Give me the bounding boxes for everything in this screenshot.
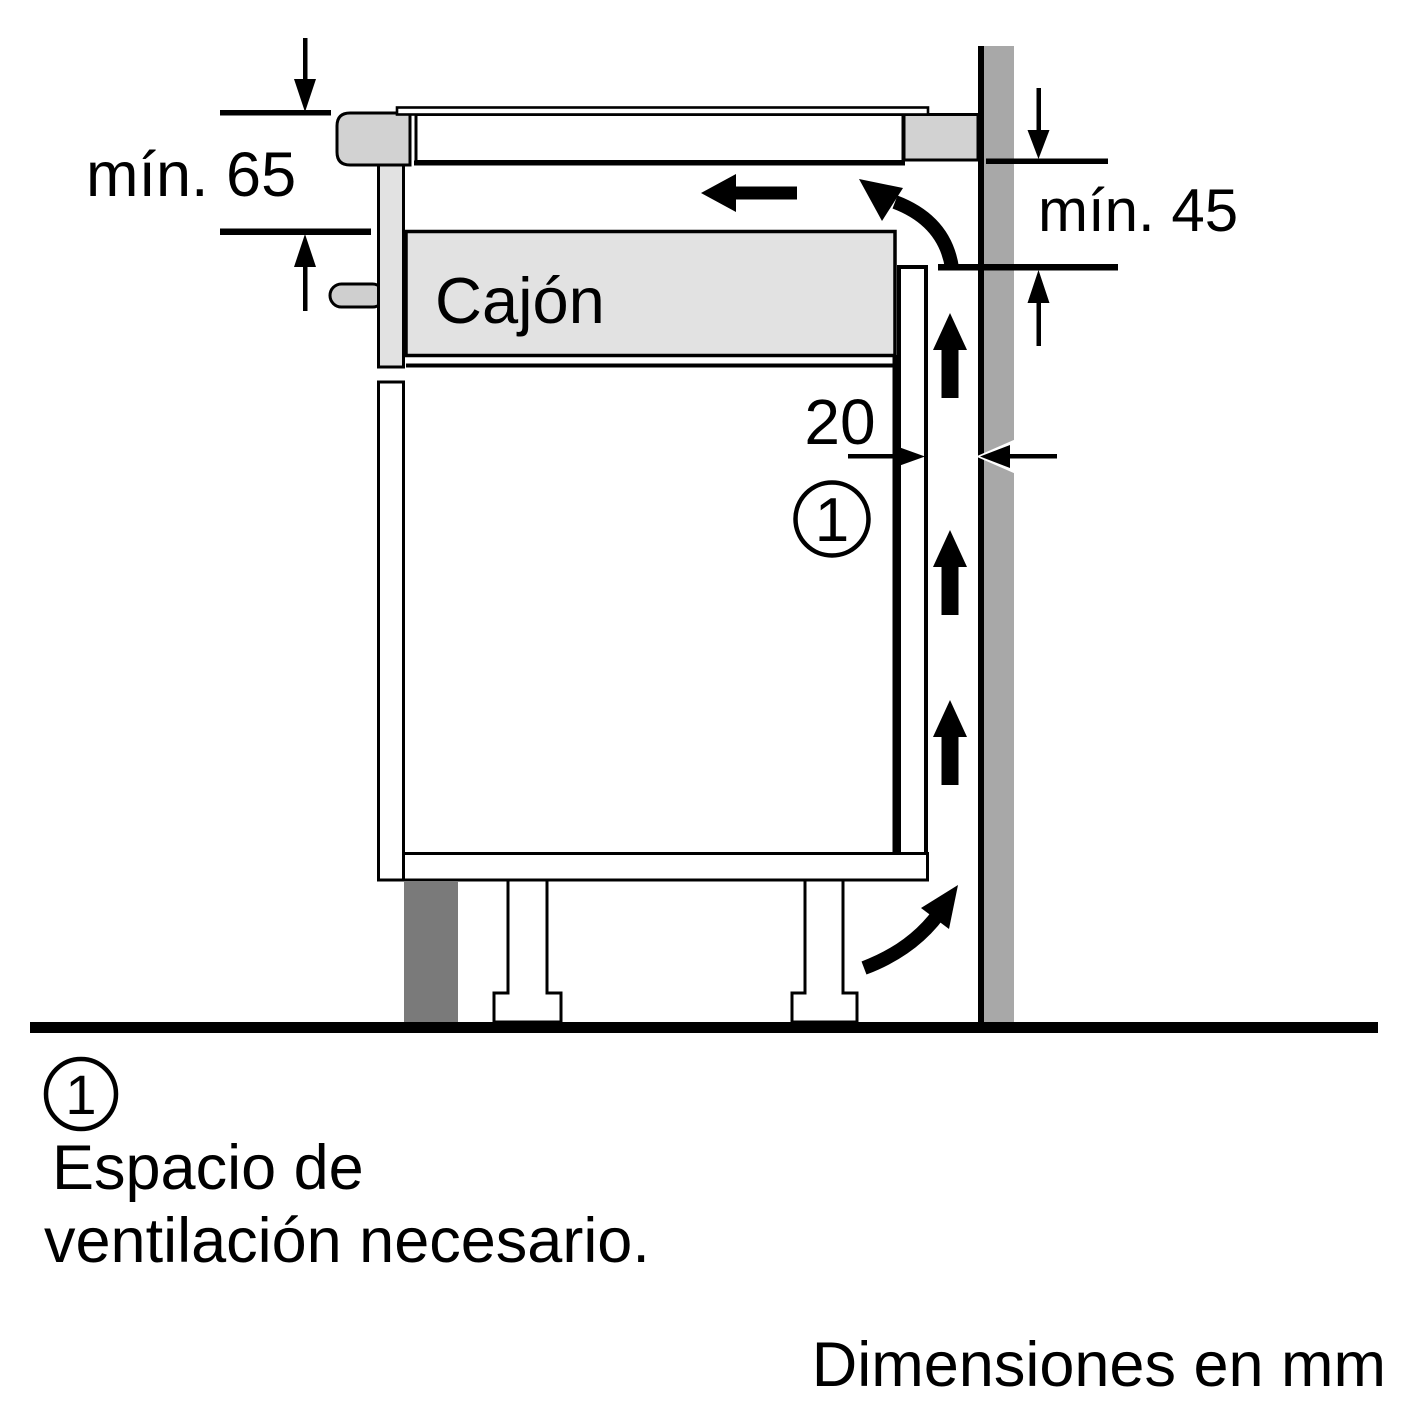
dim-label-top-clearance: mín. 65 (86, 140, 296, 210)
dim-arrow-shaft (1009, 454, 1057, 459)
airflow-up-arrow-1 (933, 313, 967, 398)
cabinet-leg-left (494, 880, 561, 1022)
dim-top-clearance: mín. 65 (86, 38, 371, 311)
cabinet-front-rail (379, 165, 404, 367)
hob-body (416, 115, 903, 162)
airflow-up-arrow-2 (933, 530, 967, 615)
dim-arrow-shaft (303, 266, 308, 311)
airflow-left-arrow-shaft (735, 187, 797, 200)
callout-1: 1 (796, 483, 869, 556)
airflow-up-arrowhead (933, 530, 967, 567)
cabinet-bottom-panel (404, 854, 928, 881)
airflow-up-arrow-shaft (942, 349, 959, 398)
dim-arrow-up-head (1028, 270, 1050, 303)
airflow-up-arrowhead (933, 700, 967, 737)
cabinet-back-panel (899, 267, 926, 854)
plinth (404, 881, 458, 1022)
dim-line-lower (938, 264, 1118, 271)
hob-frame-left (337, 113, 410, 165)
legend: 1 Espacio de ventilación necesario. (44, 1059, 650, 1276)
dim-label-side-clearance: mín. 45 (1038, 177, 1238, 244)
airflow-up-arrow-shaft (942, 566, 959, 615)
airflow-left-arrowhead (701, 174, 736, 212)
hob-installation-diagram: Cajón (0, 0, 1406, 1406)
worktop-filler (904, 115, 978, 161)
airflow-turn-arrow-curve (895, 202, 952, 268)
airflow-up-arrow-shaft (942, 736, 959, 785)
dim-arrow-down-head (294, 79, 316, 112)
dim-arrow-shaft (303, 38, 308, 82)
hob-assembly (337, 108, 978, 166)
airflow-left-arrow (701, 174, 797, 212)
dim-label-vent-gap: 20 (804, 386, 875, 458)
airflow-up-arrow-3 (933, 700, 967, 785)
wall-body (984, 46, 1014, 1022)
drawer: Cajón (406, 232, 895, 356)
drawer-label: Cajón (435, 264, 605, 337)
dim-line-upper (220, 110, 331, 116)
dim-vent-gap: 20 (804, 386, 1057, 474)
installation-diagram-page: Cajón (0, 0, 1406, 1406)
wall (978, 46, 1014, 1022)
legend-callout-number: 1 (65, 1063, 96, 1126)
drawer-handle (330, 284, 384, 307)
legend-line2: ventilación necesario. (44, 1206, 650, 1276)
units-note: Dimensiones en mm (812, 1330, 1386, 1400)
airflow-up-arrowhead (933, 313, 967, 350)
cabinet-carcass (404, 267, 928, 1022)
dim-arrow-shaft (848, 454, 894, 459)
dim-line-lower (220, 229, 371, 236)
dim-line-upper (986, 159, 1108, 165)
cabinet-side-line (893, 355, 898, 855)
dim-arrow-shaft (1037, 302, 1042, 346)
callout-number: 1 (815, 486, 849, 555)
legend-line1: Espacio de (52, 1133, 364, 1203)
airflow-inlet-arrow (864, 885, 958, 968)
dim-arrow-shaft (1037, 88, 1042, 132)
floor-line (30, 1022, 1378, 1033)
dim-arrow-up-head (294, 234, 316, 267)
dim-arrow-down-head (1028, 130, 1050, 159)
cabinet-leg-right (792, 880, 857, 1022)
drawer-rail-line (406, 364, 894, 368)
hob-bottom-line (414, 161, 905, 166)
wall-edge-line (978, 46, 984, 1022)
cabinet-front (330, 165, 404, 880)
cabinet-door-panel (379, 382, 404, 880)
hob-glass-top (397, 108, 928, 115)
